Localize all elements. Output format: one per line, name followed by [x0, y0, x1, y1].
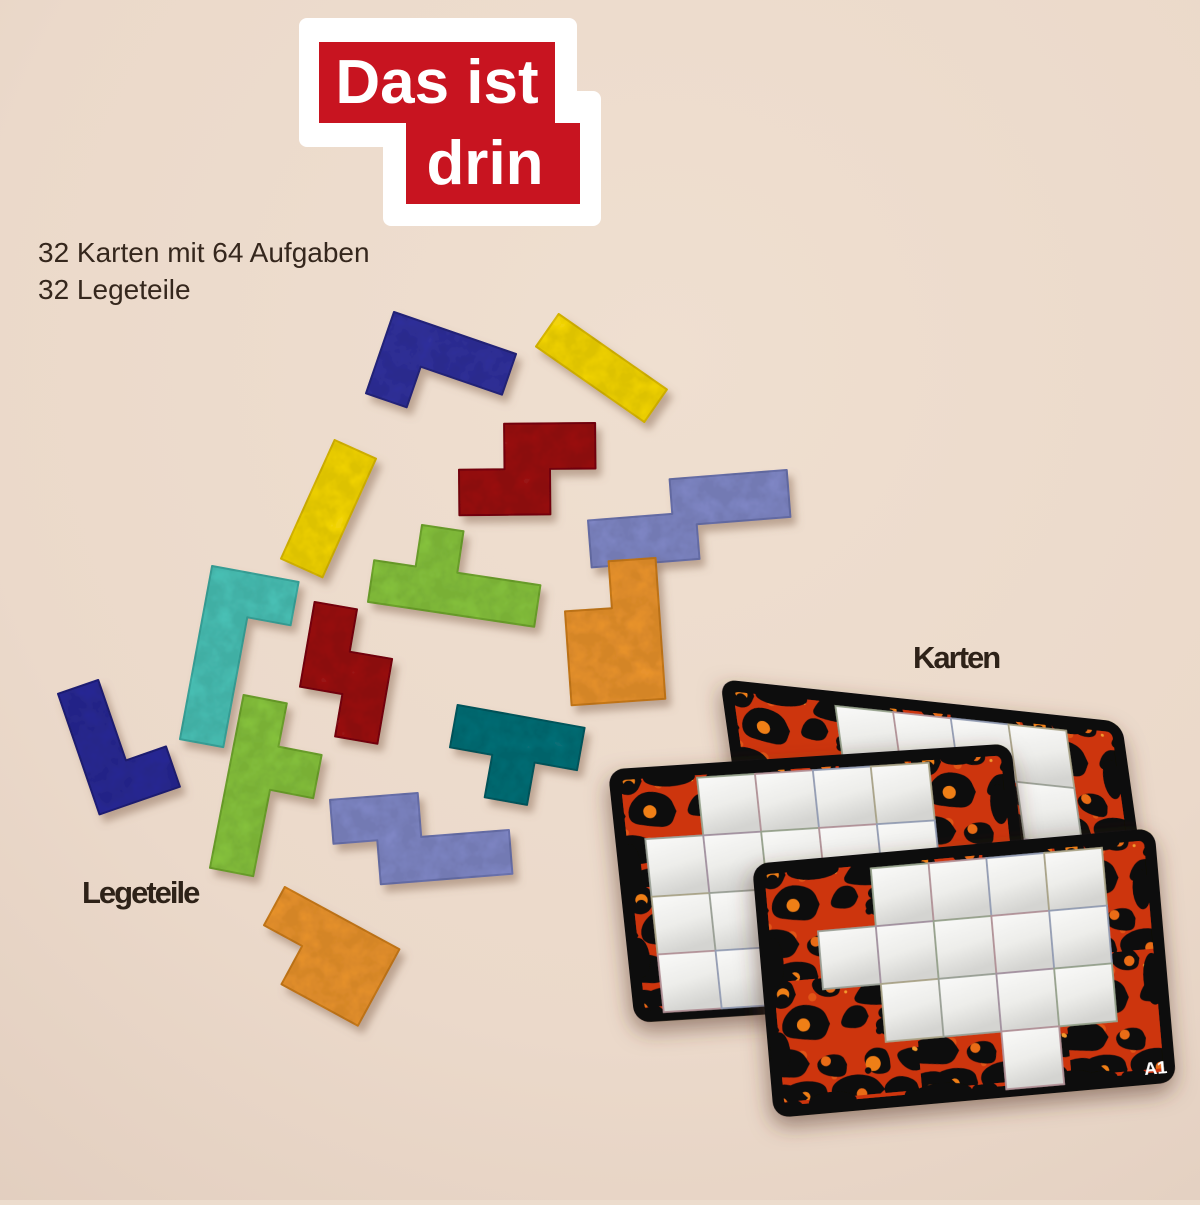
svg-text:Das ist: Das ist — [335, 48, 538, 117]
svg-text:Legeteile: Legeteile — [82, 875, 200, 910]
svg-text:32 Karten mit 64 Aufgaben: 32 Karten mit 64 Aufgaben — [38, 237, 370, 268]
svg-text:A1: A1 — [1143, 1057, 1168, 1079]
svg-text:Karten: Karten — [913, 640, 1000, 675]
svg-text:32 Legeteile: 32 Legeteile — [38, 274, 191, 305]
svg-text:drin: drin — [426, 129, 543, 198]
